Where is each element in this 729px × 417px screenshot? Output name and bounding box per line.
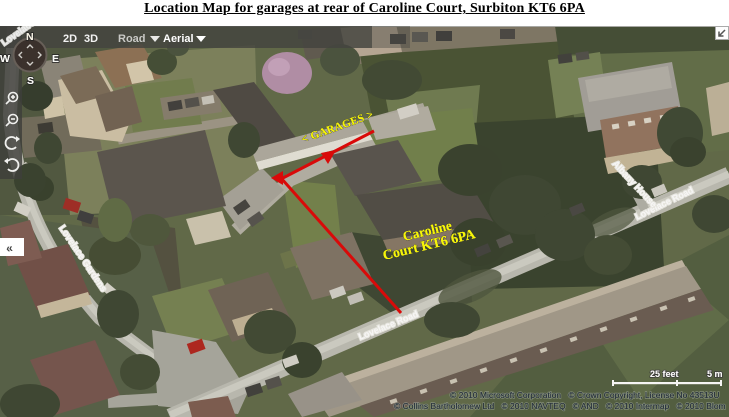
svg-text:Road: Road <box>118 33 146 45</box>
svg-text:N: N <box>26 31 34 43</box>
svg-text:3D: 3D <box>84 33 98 45</box>
svg-text:E: E <box>52 53 59 65</box>
svg-text:W: W <box>0 53 10 65</box>
svg-text:Aerial: Aerial <box>163 33 194 45</box>
svg-text:S: S <box>27 75 34 87</box>
svg-text:2D: 2D <box>63 33 77 45</box>
